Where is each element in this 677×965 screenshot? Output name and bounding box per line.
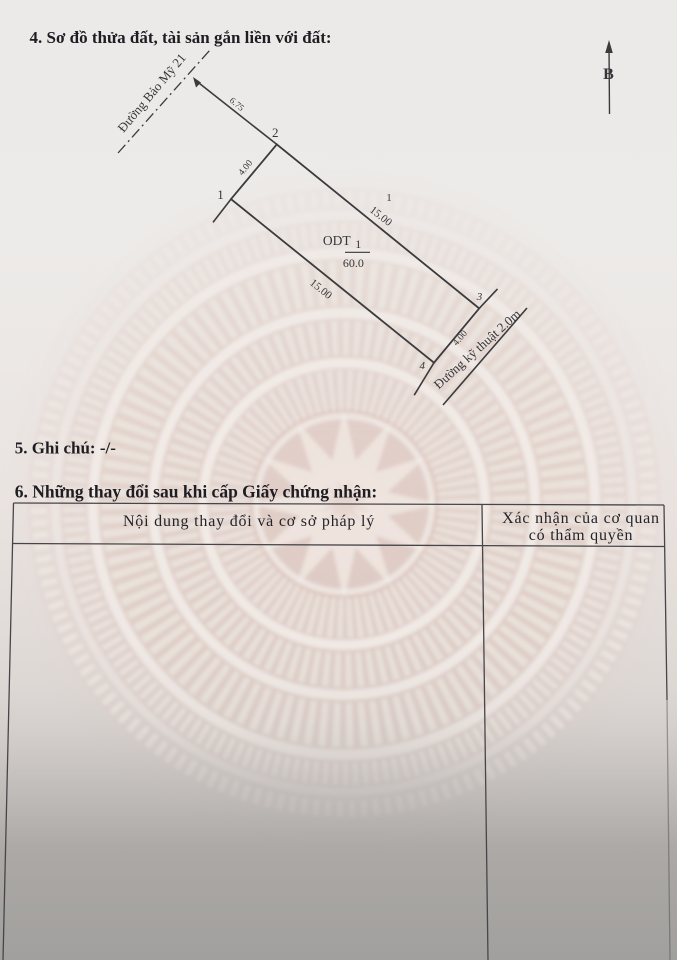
svg-text:5. Ghi chú: -/-: 5. Ghi chú: -/- — [15, 438, 116, 457]
svg-text:1: 1 — [355, 237, 361, 251]
svg-text:1: 1 — [217, 187, 224, 202]
svg-text:ODT: ODT — [323, 233, 351, 248]
svg-text:Xác nhận của cơ quan: Xác nhận của cơ quan — [502, 510, 660, 527]
svg-text:4. Sơ đồ thửa đất, tài sản gắn: 4. Sơ đồ thửa đất, tài sản gắn liền với … — [30, 28, 332, 47]
svg-text:4: 4 — [419, 360, 425, 372]
svg-text:3: 3 — [476, 291, 483, 303]
svg-text:2: 2 — [272, 125, 279, 140]
svg-text:Nội dung thay đổi và cơ sở phá: Nội dung thay đổi và cơ sở pháp lý — [123, 513, 375, 530]
svg-text:60.0: 60.0 — [343, 256, 364, 270]
svg-text:có thẩm quyền: có thẩm quyền — [529, 527, 634, 544]
svg-text:B: B — [603, 66, 614, 83]
svg-text:1: 1 — [386, 192, 392, 204]
svg-text:6. Những thay đổi sau khi cấp: 6. Những thay đổi sau khi cấp Giấy chứng… — [15, 482, 377, 502]
